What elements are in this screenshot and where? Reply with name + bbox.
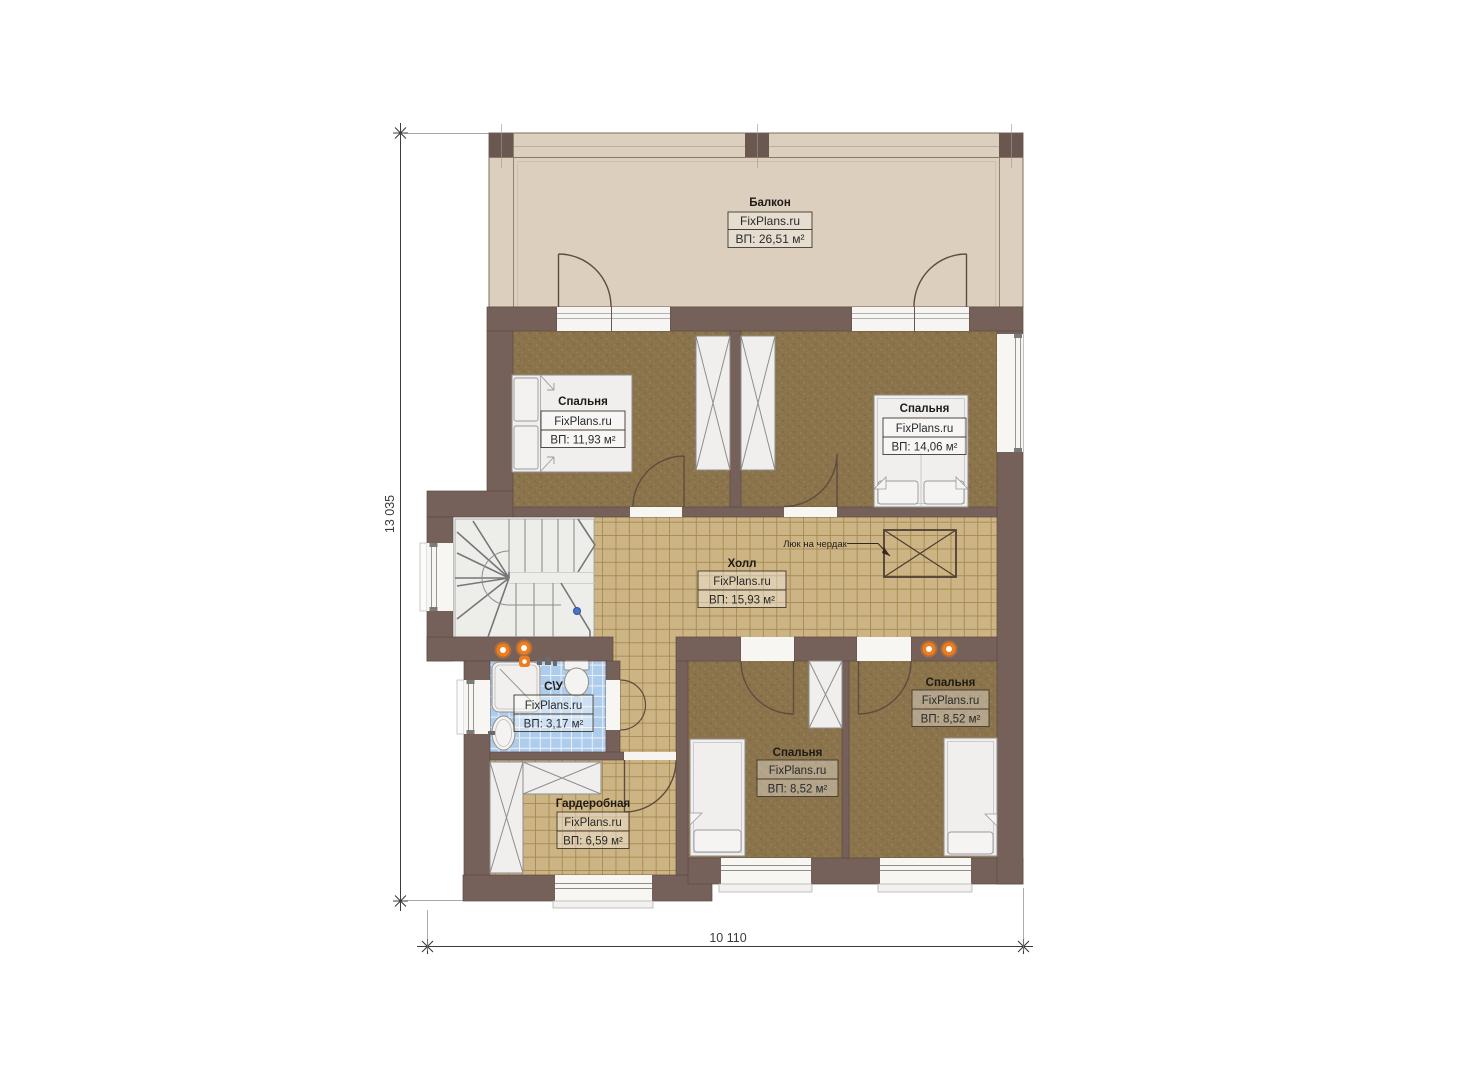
svg-text:Балкон: Балкон <box>749 197 791 209</box>
svg-text:FixPlans.ru: FixPlans.ru <box>922 695 980 707</box>
svg-text:10 110: 10 110 <box>709 931 746 945</box>
svg-text:ВП: 6,59 м²: ВП: 6,59 м² <box>563 836 623 848</box>
svg-text:ВП: 8,52 м²: ВП: 8,52 м² <box>921 714 981 726</box>
svg-text:FixPlans.ru: FixPlans.ru <box>564 817 622 829</box>
svg-text:ВП: 15,93 м²: ВП: 15,93 м² <box>709 595 775 607</box>
svg-text:Спальня: Спальня <box>558 396 608 408</box>
svg-text:FixPlans.ru: FixPlans.ru <box>554 416 612 428</box>
svg-text:13 035: 13 035 <box>383 495 397 533</box>
svg-text:Холл: Холл <box>728 558 757 570</box>
svg-text:FixPlans.ru: FixPlans.ru <box>769 765 827 777</box>
svg-text:ВП: 11,93 м²: ВП: 11,93 м² <box>550 435 615 447</box>
svg-text:Люк на чердак: Люк на чердак <box>783 539 847 550</box>
svg-text:Спальня: Спальня <box>773 747 823 759</box>
svg-text:FixPlans.ru: FixPlans.ru <box>740 214 800 228</box>
svg-text:Спальня: Спальня <box>900 403 950 415</box>
svg-text:FixPlans.ru: FixPlans.ru <box>713 576 771 588</box>
svg-text:ВП: 8,52 м²: ВП: 8,52 м² <box>768 784 828 796</box>
svg-text:ВП: 26,51 м²: ВП: 26,51 м² <box>736 232 805 246</box>
svg-text:ВП: 3,17 м²: ВП: 3,17 м² <box>524 719 584 731</box>
svg-text:С\У: С\У <box>544 681 564 693</box>
svg-text:FixPlans.ru: FixPlans.ru <box>896 423 954 435</box>
svg-text:ВП: 14,06 м²: ВП: 14,06 м² <box>891 442 957 454</box>
svg-text:Спальня: Спальня <box>926 677 976 689</box>
svg-text:FixPlans.ru: FixPlans.ru <box>525 700 583 712</box>
svg-text:Гардеробная: Гардеробная <box>556 798 630 810</box>
